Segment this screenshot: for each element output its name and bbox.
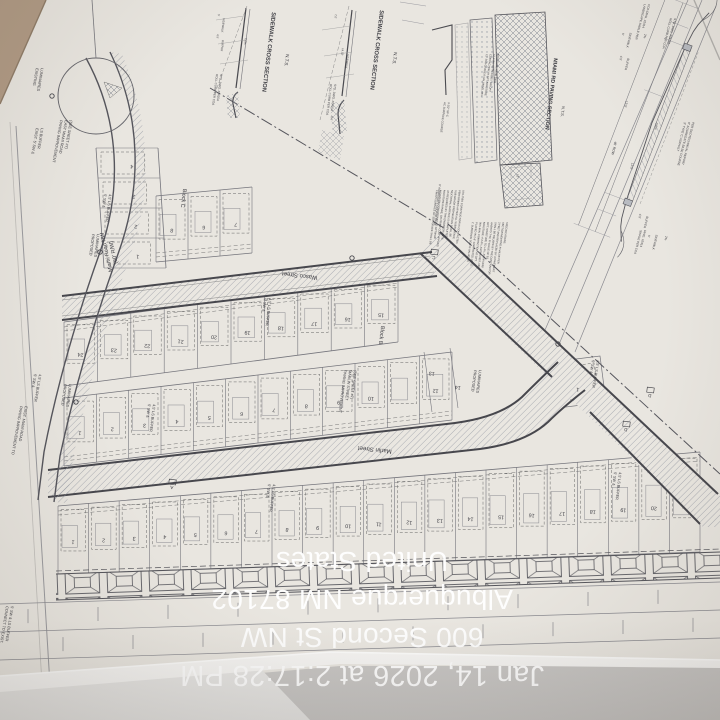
d3-base-step — [500, 163, 543, 208]
photo-of-site-plan: 2423222120191817161512345678910121234567… — [0, 0, 720, 720]
lot-number-20: 20 — [651, 504, 658, 511]
lot-number-19: 19 — [620, 506, 627, 513]
camera-timestamp-overlay: Jan 14, 2026 at 2:17:28 PM 600 Second St… — [128, 542, 596, 694]
timestamp-country: United States — [128, 542, 596, 580]
lot-number-16: 16 — [528, 511, 535, 518]
dim-d1-2pct-line0: 2.0% — [243, 38, 248, 45]
dim-d3-12: 12" — [516, 174, 520, 179]
lot-number-21: 21 — [177, 338, 184, 345]
lot-number-18: 18 — [590, 508, 597, 515]
lot-number-23: 23 — [111, 346, 118, 353]
d1-curb-hatch — [226, 92, 240, 118]
lot-14: 14 — [455, 384, 462, 391]
timestamp-date: Jan 14, 2026 at 2:17:28 PM — [128, 656, 596, 694]
lot-number-17: 17 — [311, 320, 318, 327]
lot-number-22: 22 — [144, 342, 151, 349]
lot-number-12: 12 — [432, 387, 439, 394]
lot-number-19: 19 — [244, 329, 251, 336]
timestamp-street: 600 Second St NW — [128, 618, 596, 656]
lot-number-13: 13 — [437, 517, 444, 524]
lot-number-12: 12 — [406, 519, 413, 526]
dim-d3-12-line0: 12" — [516, 174, 520, 179]
lot-number-10: 10 — [368, 395, 375, 402]
timestamp-city: Albuquerque NM 87102 — [128, 580, 596, 618]
dim-d1-2pct: 2.0% — [243, 38, 248, 45]
lot-number-15: 15 — [498, 513, 505, 520]
lot-number-18: 18 — [278, 324, 285, 331]
lot-number-14: 14 — [467, 515, 474, 522]
lot-number-11: 11 — [376, 520, 382, 527]
d3-base-crosshatch — [495, 12, 552, 165]
lot-number-24: 24 — [77, 351, 84, 358]
lot-number-17: 17 — [559, 510, 566, 517]
lot-13: 13 — [429, 370, 436, 377]
lot-13-line0: 13 — [429, 370, 436, 377]
lot-number-20: 20 — [211, 333, 218, 340]
lot-number-10: 10 — [345, 522, 352, 529]
lot-number-16: 16 — [344, 316, 351, 323]
lot-number-15: 15 — [378, 311, 385, 318]
lot-14-line0: 14 — [455, 384, 462, 391]
